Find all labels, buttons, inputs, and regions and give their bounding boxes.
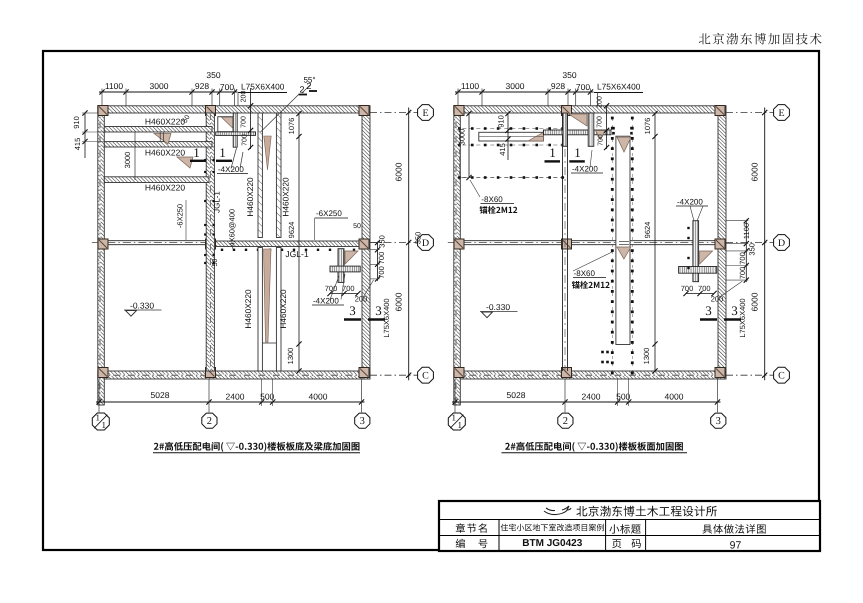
- svg-text:H460X220: H460X220: [245, 177, 255, 217]
- svg-text:700: 700: [220, 82, 234, 92]
- svg-text:L75X6X400: L75X6X400: [597, 82, 641, 92]
- svg-text:700: 700: [698, 284, 711, 293]
- svg-text:200: 200: [355, 295, 368, 304]
- svg-text:9624: 9624: [287, 222, 296, 239]
- svg-text:D: D: [422, 238, 429, 249]
- svg-text:1: 1: [102, 420, 107, 430]
- svg-text:3: 3: [705, 303, 712, 318]
- svg-text:L75X6X400: L75X6X400: [738, 298, 747, 337]
- svg-text:700: 700: [377, 266, 386, 279]
- svg-text:H460X220: H460X220: [281, 177, 291, 217]
- svg-text:1300: 1300: [642, 348, 651, 365]
- svg-text:L75X6X400: L75X6X400: [382, 298, 391, 337]
- svg-text:-8X60: -8X60: [574, 269, 596, 278]
- svg-text:3: 3: [349, 303, 356, 318]
- svg-text:5028: 5028: [151, 390, 170, 400]
- svg-text:H460X220: H460X220: [145, 183, 185, 193]
- svg-text:200: 200: [240, 91, 247, 103]
- svg-text:97: 97: [730, 540, 742, 552]
- svg-text:200: 200: [597, 96, 604, 108]
- svg-text:1: 1: [458, 420, 463, 430]
- svg-text:-0.330: -0.330: [486, 302, 510, 312]
- svg-text:500: 500: [616, 392, 630, 402]
- svg-text:910: 910: [72, 116, 81, 129]
- svg-text:4000: 4000: [309, 392, 328, 402]
- svg-text:500: 500: [260, 392, 274, 402]
- svg-text:2400: 2400: [226, 392, 245, 402]
- svg-text:700: 700: [377, 252, 386, 265]
- svg-text:3: 3: [360, 416, 365, 427]
- svg-text:6000: 6000: [394, 292, 404, 311]
- svg-text:3: 3: [716, 416, 721, 427]
- svg-text:-4X200: -4X200: [677, 198, 703, 207]
- svg-text:-8X60: -8X60: [481, 195, 503, 204]
- svg-text:350: 350: [414, 232, 423, 245]
- svg-text:C: C: [422, 371, 429, 382]
- svg-text:JGL-1: JGL-1: [213, 191, 222, 213]
- svg-text:BTM JG0423: BTM JG0423: [522, 538, 582, 549]
- svg-text:928: 928: [195, 81, 209, 91]
- svg-text:928: 928: [551, 81, 565, 91]
- svg-text:5028: 5028: [507, 390, 526, 400]
- svg-text:1100: 1100: [105, 81, 124, 91]
- svg-text:H460X220: H460X220: [145, 117, 185, 127]
- svg-text:JGL-1: JGL-1: [285, 249, 308, 259]
- svg-text:700: 700: [598, 134, 605, 146]
- svg-text:E: E: [422, 108, 428, 119]
- svg-text:415: 415: [73, 138, 82, 151]
- svg-text:3: 3: [375, 303, 382, 318]
- svg-text:6000: 6000: [750, 162, 760, 181]
- svg-text:2: 2: [207, 416, 212, 427]
- svg-text:700: 700: [596, 116, 603, 128]
- svg-text:C: C: [778, 371, 785, 382]
- svg-text:-6X250: -6X250: [176, 204, 185, 228]
- svg-text:700: 700: [738, 267, 747, 280]
- svg-text:1300: 1300: [286, 348, 295, 365]
- svg-text:3000: 3000: [506, 81, 525, 91]
- svg-text:350: 350: [562, 70, 576, 80]
- svg-text:1: 1: [549, 145, 556, 160]
- svg-text:700: 700: [738, 252, 747, 265]
- svg-text:1076: 1076: [643, 118, 652, 135]
- svg-text:2400: 2400: [582, 392, 601, 402]
- svg-text:H460X220: H460X220: [145, 148, 185, 158]
- svg-text:1100: 1100: [461, 81, 480, 91]
- svg-text:L75X6X400: L75X6X400: [241, 82, 285, 92]
- svg-text:-0.330: -0.330: [130, 301, 154, 311]
- svg-text:700: 700: [576, 82, 590, 92]
- svg-text:700: 700: [681, 284, 694, 293]
- svg-text:4000: 4000: [665, 392, 684, 402]
- svg-text:-6X250: -6X250: [316, 209, 342, 218]
- svg-text:-4X200: -4X200: [313, 297, 339, 306]
- svg-text:6000: 6000: [394, 162, 404, 181]
- svg-text:50: 50: [353, 223, 361, 230]
- svg-text:700: 700: [242, 134, 249, 146]
- svg-text:E: E: [778, 108, 784, 119]
- svg-text:50: 50: [212, 259, 219, 267]
- svg-text:910: 910: [497, 115, 506, 128]
- svg-text:415: 415: [498, 143, 507, 156]
- svg-text:700: 700: [342, 284, 355, 293]
- svg-text:3000: 3000: [123, 152, 132, 169]
- svg-text:350: 350: [206, 70, 220, 80]
- svg-text:1: 1: [452, 413, 457, 423]
- svg-text:3000: 3000: [458, 129, 467, 146]
- svg-text:1: 1: [96, 413, 101, 423]
- svg-text:3000: 3000: [150, 81, 169, 91]
- svg-text:H460X220: H460X220: [243, 289, 253, 329]
- svg-text:D: D: [778, 238, 785, 249]
- svg-text:-4X200: -4X200: [572, 165, 598, 174]
- svg-text:9624: 9624: [643, 222, 652, 239]
- svg-text:3: 3: [731, 303, 738, 318]
- svg-text:700: 700: [240, 116, 247, 128]
- svg-text:6000: 6000: [750, 292, 760, 311]
- svg-text:1076: 1076: [287, 118, 296, 135]
- svg-text:1: 1: [219, 145, 226, 160]
- svg-text:-4X60@400: -4X60@400: [228, 209, 237, 249]
- svg-text:H460X220: H460X220: [278, 289, 288, 329]
- svg-text:1: 1: [574, 145, 581, 160]
- svg-text:2: 2: [563, 416, 568, 427]
- svg-text:1: 1: [193, 145, 200, 160]
